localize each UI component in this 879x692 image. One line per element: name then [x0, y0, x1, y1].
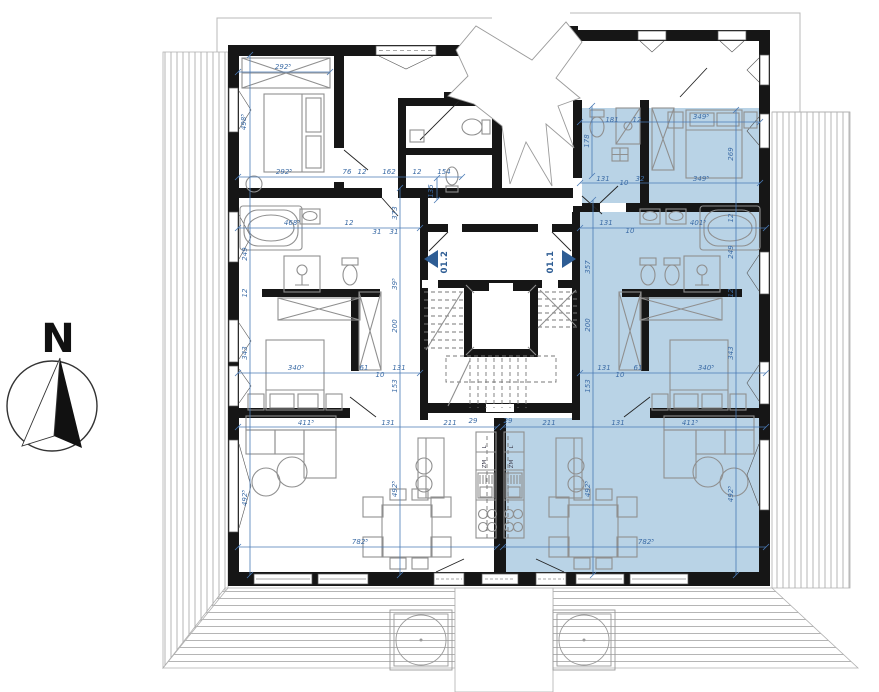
dimension-label: 492⁵ [727, 486, 735, 502]
dimension-label: 373 [391, 206, 399, 219]
dimension-label: 10 [376, 371, 385, 379]
dimension-label: 200 [391, 319, 399, 333]
dimension-label: 782⁵ [638, 538, 654, 546]
terrace-hatch-left [163, 52, 228, 668]
dimension-label: 39⁵ [391, 278, 399, 290]
dimension-label: 12 [345, 219, 354, 227]
dimension-label: 249 [241, 247, 249, 261]
wc-fixtures [410, 119, 490, 192]
dimension-label: 498⁵ [240, 114, 248, 130]
north-compass: N [7, 316, 97, 451]
dimension-label: 131 [381, 419, 394, 427]
dimension-label: 782⁵ [352, 538, 368, 546]
dimension-label: 200 [584, 318, 592, 332]
dimension-label: 12 [413, 168, 422, 176]
dimension-label: 12 [727, 288, 735, 297]
entrance-walkway [455, 588, 553, 692]
dimension-label: 492⁵ [241, 490, 249, 506]
dimension-label: 181 [605, 116, 618, 124]
dimension-label: 76 [343, 168, 352, 176]
dimension-label: 61 [634, 364, 643, 372]
dimension-label: 343 [241, 346, 249, 359]
unit-label: 01.1 [546, 251, 556, 274]
dimension-label: 29 [469, 417, 478, 425]
north-label: N [41, 316, 74, 362]
dimension-label: 32 [636, 175, 645, 183]
dimension-label: 357 [584, 260, 592, 274]
dimension-label: 340⁵ [288, 364, 304, 372]
dimension-label: 131 [596, 175, 609, 183]
compass-needle-light [22, 358, 60, 446]
dimension-label: 162 [382, 168, 396, 176]
kitchen-label: ZM [509, 459, 515, 468]
dimension-label: 468⁵ [284, 219, 300, 227]
dimension-label: 153 [584, 379, 592, 392]
dimension-label: 492⁵ [391, 481, 399, 497]
dimension-label: 249 [727, 245, 735, 259]
kitchen-label: ZM [482, 459, 488, 468]
terrace-hatch-right [772, 112, 850, 588]
dimension-label: 292⁵ [276, 168, 292, 176]
dimension-label: 178 [583, 134, 591, 148]
dimension-label: 492⁵ [584, 481, 592, 497]
dimension-label: 31 [390, 228, 399, 236]
unit-label: 01.2 [440, 251, 450, 274]
dimension-label: 411⁵ [682, 419, 698, 427]
dimension-label: 401⁵ [690, 219, 706, 227]
dimension-label: 131 [599, 219, 612, 227]
dimension-label: 349⁵ [693, 113, 709, 121]
dimension-label: 154 [437, 168, 450, 176]
dimension-label: 153 [391, 379, 399, 392]
dimension-label: 29 [504, 417, 513, 425]
dimension-label: 61 [360, 364, 369, 372]
dimension-label: 211 [443, 419, 456, 427]
terrace-hatch-bottom-right [553, 588, 858, 668]
dimension-label: 12 [358, 168, 367, 176]
dimension-label: 269 [727, 147, 735, 161]
dimension-label: 340⁵ [698, 364, 714, 372]
floor-plan-page: 292⁵498⁵292⁵761216212154135468⁵123131373… [0, 0, 879, 692]
dimension-label: 131 [597, 364, 610, 372]
dimension-label: 131 [611, 419, 624, 427]
entrance-door [482, 574, 518, 584]
dimension-label: 31 [373, 228, 382, 236]
dimension-label: 10 [616, 371, 625, 379]
unit-marker-01-1[interactable]: 01.1 [546, 250, 576, 273]
dimension-label: 12 [727, 213, 735, 222]
dimension-label: 292⁵ [275, 63, 291, 71]
dimension-label: 135 [427, 184, 435, 198]
dimension-label: 12 [241, 288, 249, 297]
dimension-label: 10 [620, 179, 629, 187]
dimension-label: 211 [542, 419, 555, 427]
apartment-01-2-area[interactable] [238, 55, 494, 572]
dimension-label: 12 [633, 116, 642, 124]
dimension-label: 10 [626, 227, 635, 235]
dimension-label: 411⁵ [298, 419, 314, 427]
dimension-label: 349⁵ [693, 175, 709, 183]
dimension-label: 131 [392, 364, 405, 372]
floor-plan-drawing: 292⁵498⁵292⁵761216212154135468⁵123131373… [0, 0, 879, 692]
elevator [464, 283, 538, 357]
dimension-label: 343 [727, 346, 735, 359]
